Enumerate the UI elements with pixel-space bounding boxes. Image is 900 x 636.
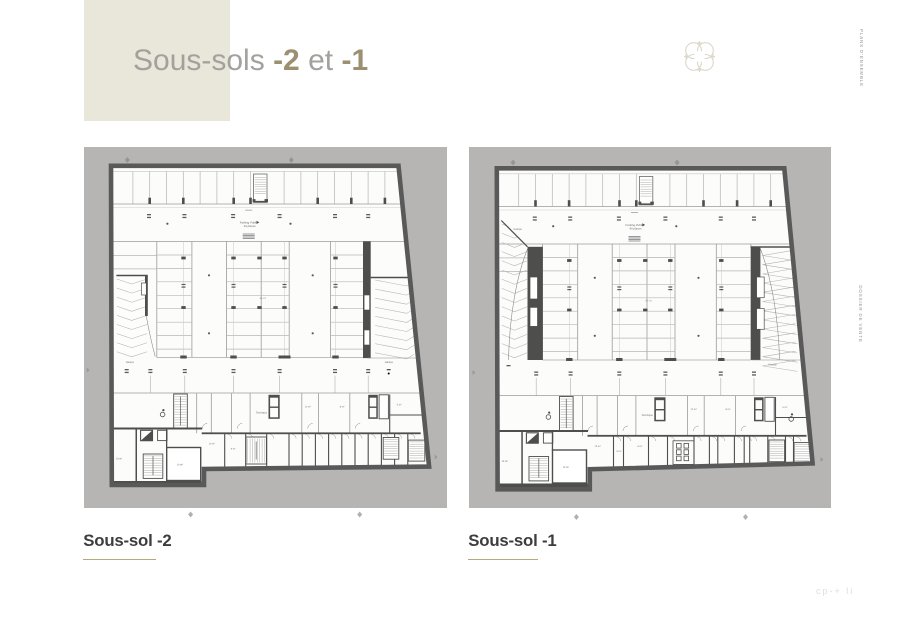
svg-text:Rampe: Rampe [126,361,135,364]
svg-text:B1-02: B1-02 [260,297,267,300]
svg-text:Rampe: Rampe [769,364,778,367]
svg-text:Technique: Technique [642,414,654,417]
svg-text:10 m²: 10 m² [209,443,215,446]
svg-text:94 places: 94 places [244,224,257,228]
svg-text:10 m²: 10 m² [177,464,184,467]
svg-text:10 m²: 10 m² [563,466,570,469]
svg-text:10 m²: 10 m² [595,445,601,448]
svg-text:6 m²: 6 m² [638,445,643,448]
svg-text:5 m²: 5 m² [397,404,402,407]
svg-text:Rampe: Rampe [385,361,394,364]
svg-text:94 places: 94 places [630,227,643,231]
svg-text:5 m²: 5 m² [783,406,788,409]
svg-text:8 m²: 8 m² [726,408,731,411]
svg-text:9 m²: 9 m² [231,448,236,451]
svg-text:Technique: Technique [256,412,268,415]
svg-text:Rampe: Rampe [514,228,523,231]
svg-text:13 m²: 13 m² [502,460,509,463]
svg-text:8 m²: 8 m² [340,406,345,409]
svg-text:B1-02: B1-02 [646,300,653,303]
svg-text:12 m²: 12 m² [691,408,697,411]
svg-text:9 m²: 9 m² [617,450,622,453]
svg-text:13 m²: 13 m² [116,458,123,461]
svg-text:12 m²: 12 m² [305,406,311,409]
